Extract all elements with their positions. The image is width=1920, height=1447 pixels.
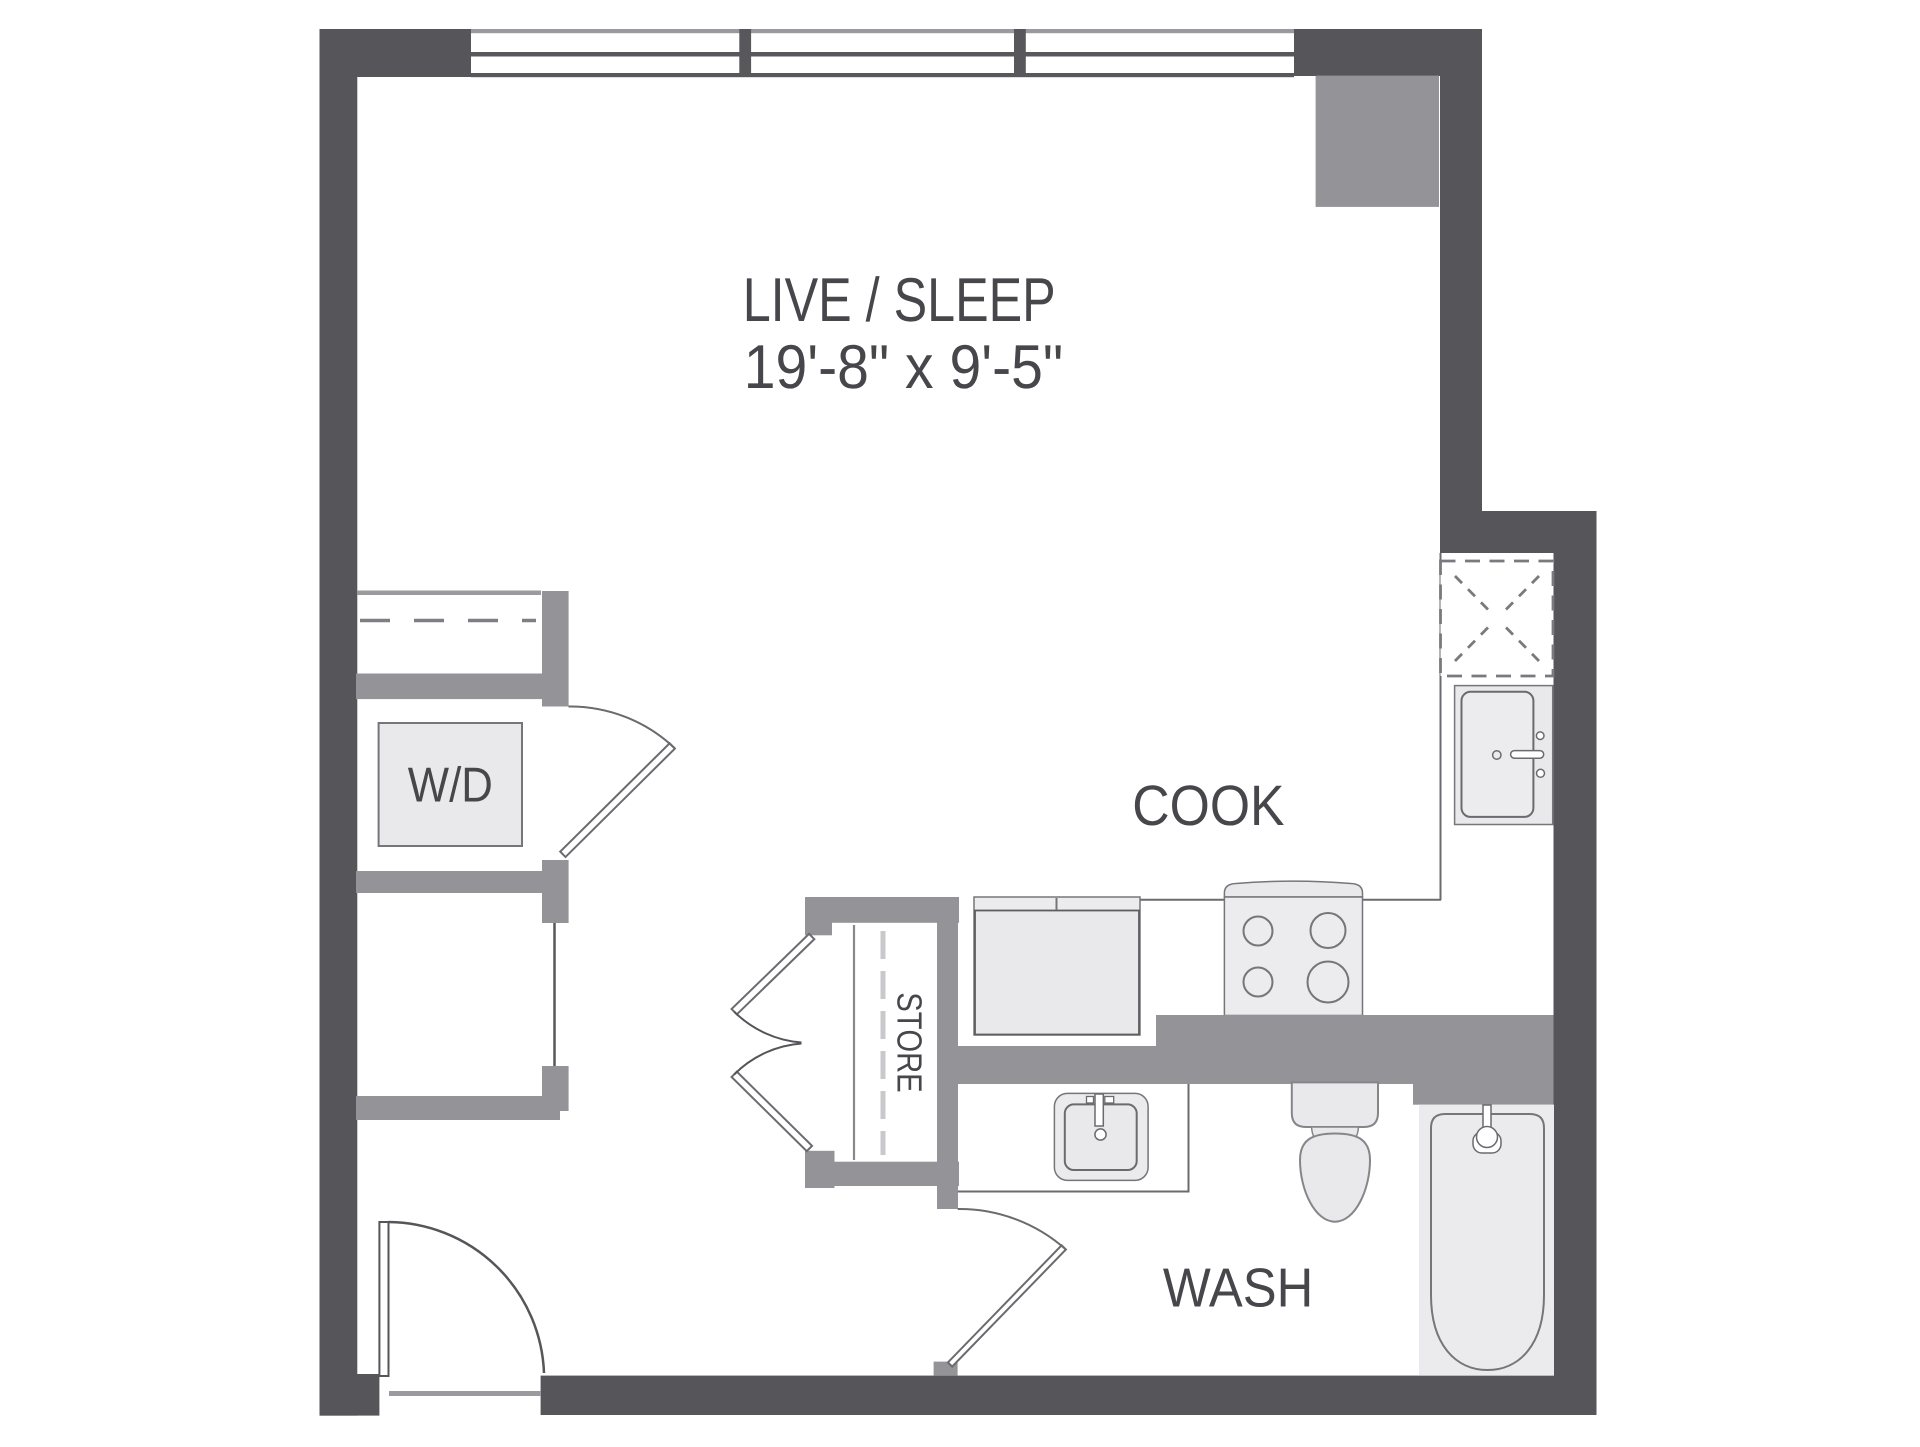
svg-text:W/D: W/D — [408, 759, 493, 813]
svg-text:19'-8" x 9'-5": 19'-8" x 9'-5" — [744, 333, 1063, 402]
svg-text:COOK: COOK — [1132, 774, 1284, 838]
svg-text:WASH: WASH — [1163, 1257, 1313, 1319]
svg-text:LIVE / SLEEP: LIVE / SLEEP — [743, 266, 1056, 335]
